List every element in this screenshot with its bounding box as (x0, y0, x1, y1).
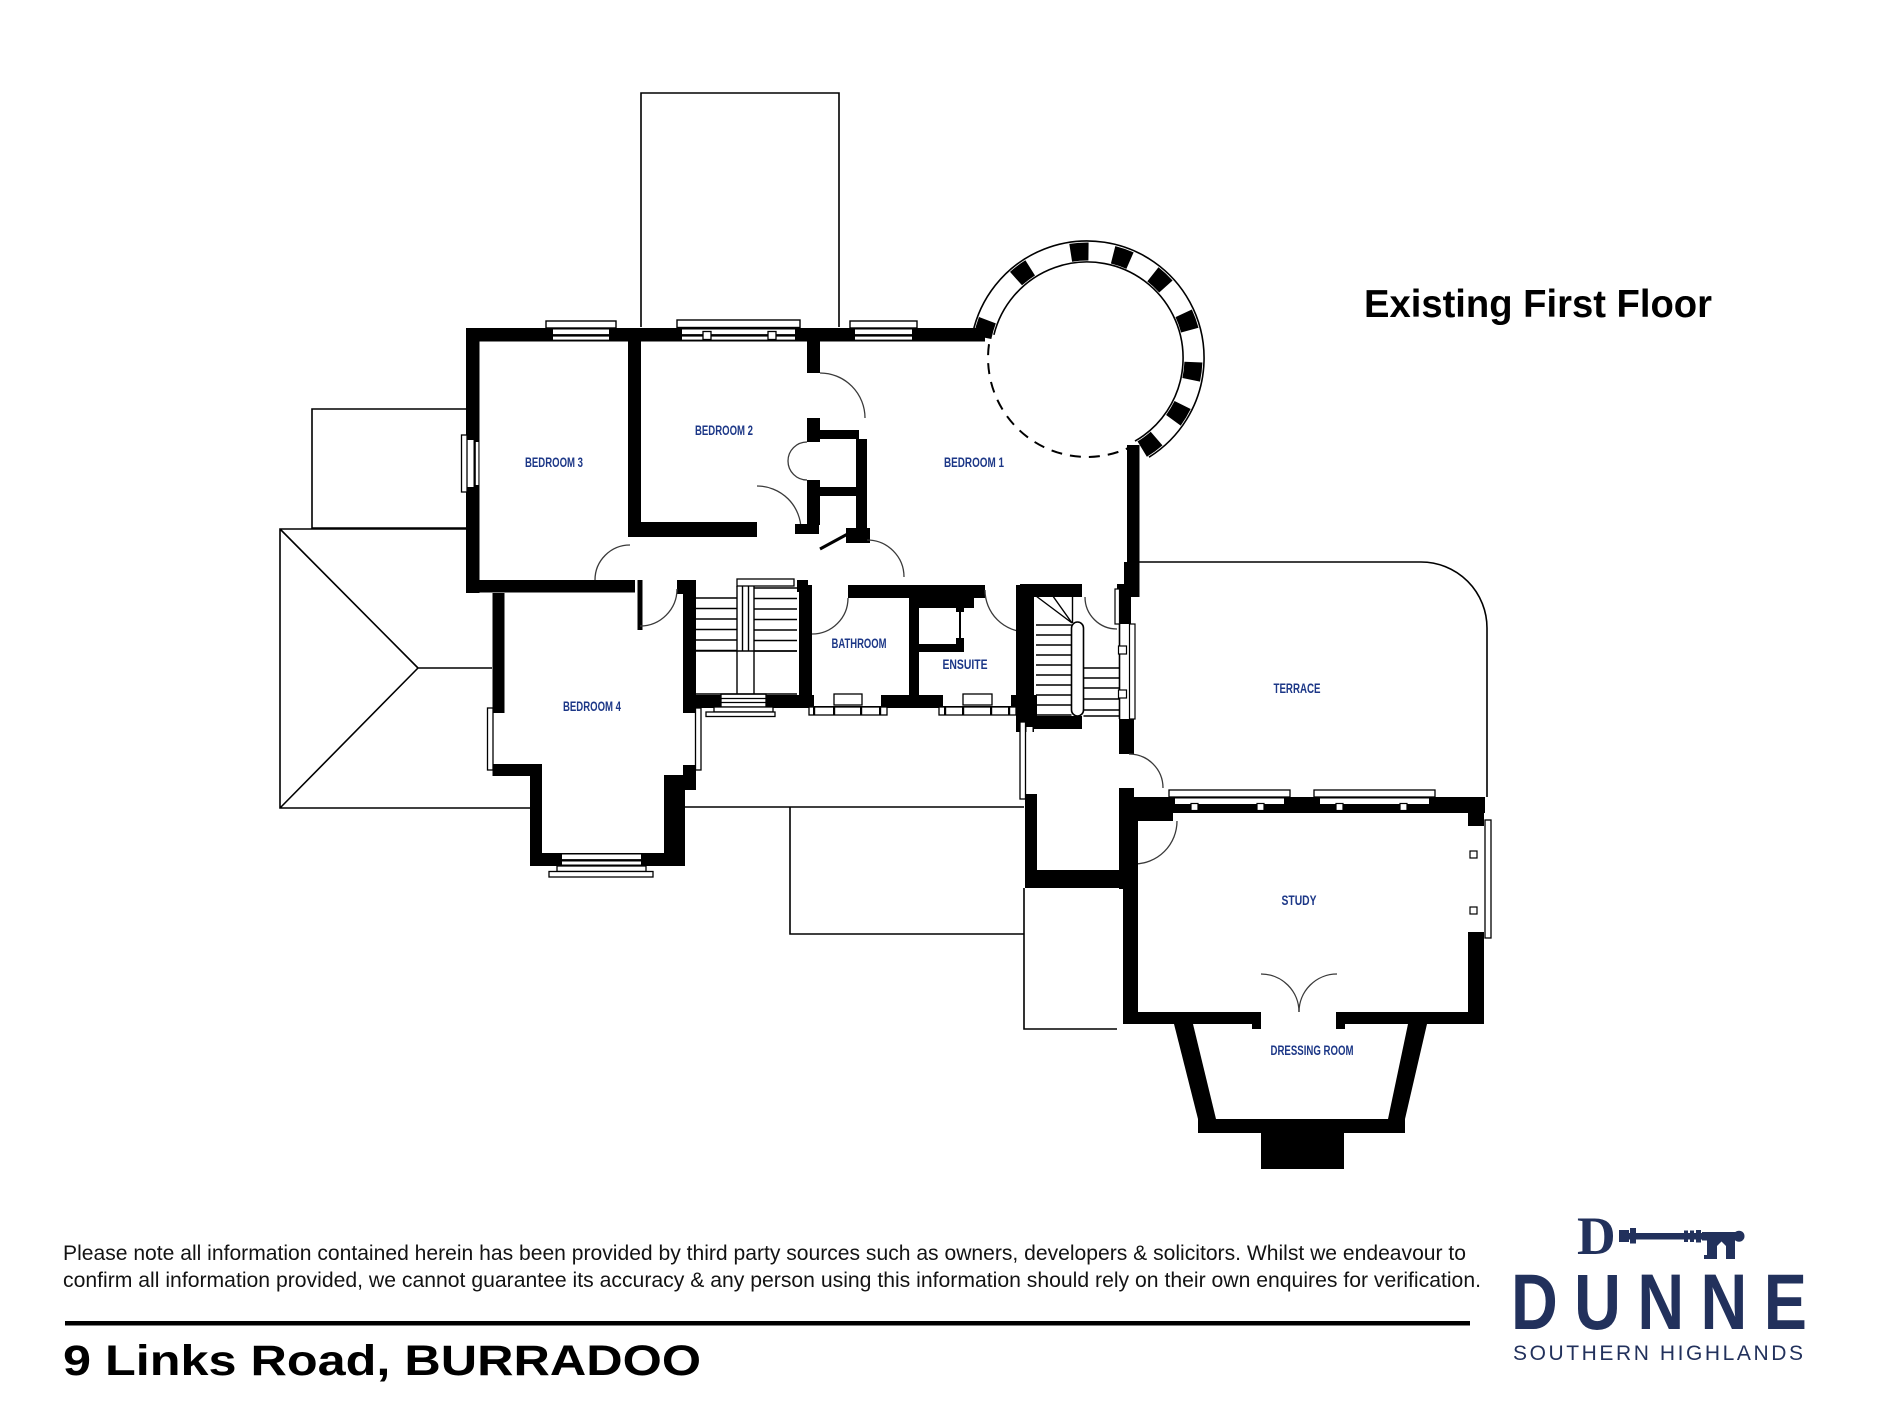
svg-text:BEDROOM 3: BEDROOM 3 (525, 455, 583, 471)
svg-text:DUNNE: DUNNE (1511, 1259, 1823, 1346)
svg-text:BATHROOM: BATHROOM (832, 636, 887, 652)
svg-text:BEDROOM 1: BEDROOM 1 (944, 455, 1004, 471)
svg-text:TERRACE: TERRACE (1274, 681, 1321, 697)
svg-text:BEDROOM 4: BEDROOM 4 (563, 699, 621, 715)
svg-text:STUDY: STUDY (1282, 893, 1317, 909)
svg-text:9 Links Road, BURRADOO: 9 Links Road, BURRADOO (63, 1337, 701, 1385)
svg-text:DRESSING ROOM: DRESSING ROOM (1271, 1043, 1354, 1059)
svg-text:D: D (1577, 1206, 1616, 1266)
svg-text:Please note all information co: Please note all information contained he… (63, 1241, 1466, 1265)
svg-text:ENSUITE: ENSUITE (943, 657, 988, 673)
svg-text:BEDROOM 2: BEDROOM 2 (695, 423, 753, 439)
svg-text:Existing First Floor: Existing First Floor (1364, 283, 1712, 326)
svg-text:confirm all information provid: confirm all information provided, we can… (63, 1268, 1481, 1292)
